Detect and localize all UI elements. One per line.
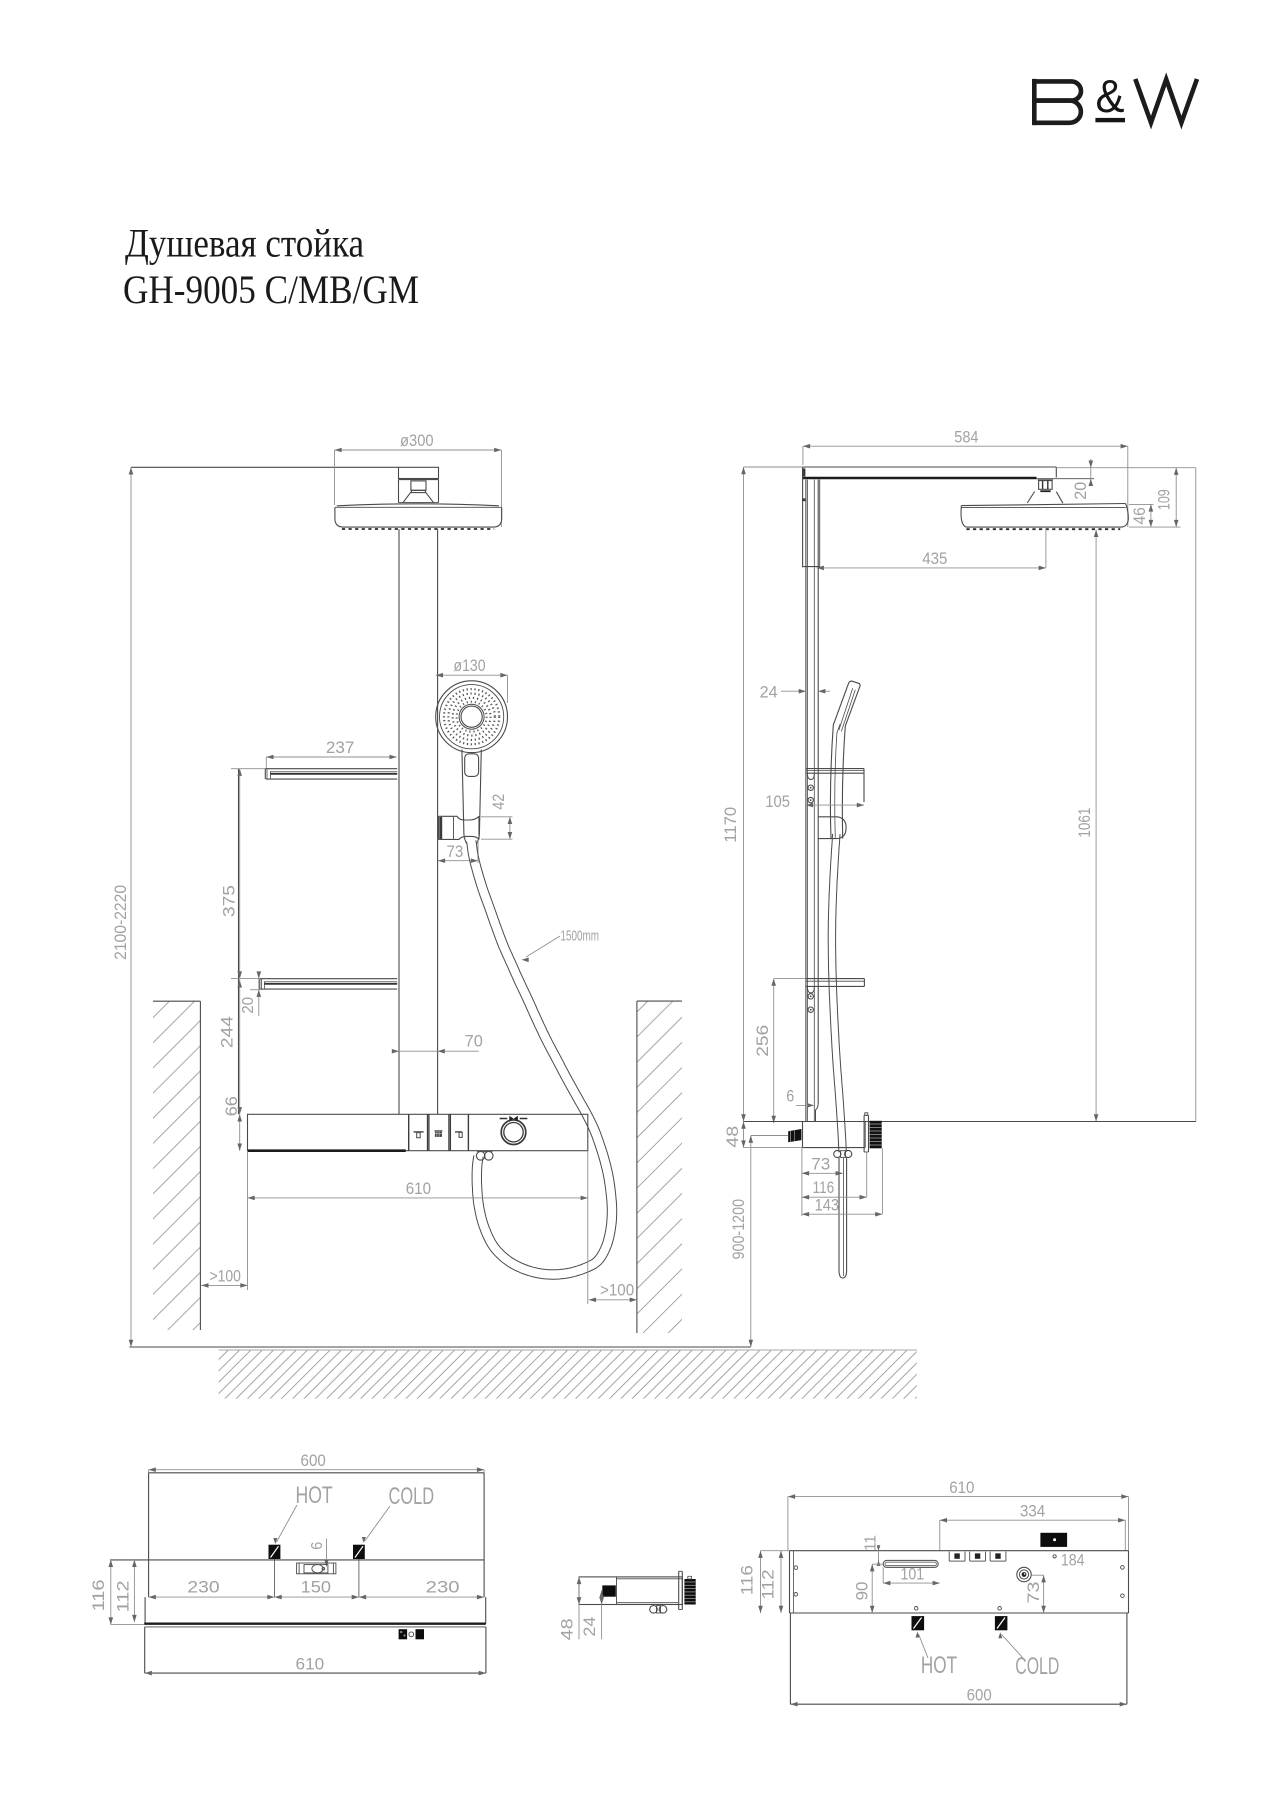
svg-text:435: 435 — [922, 550, 947, 568]
svg-text:&: & — [1096, 70, 1125, 122]
svg-text:143: 143 — [815, 1196, 839, 1214]
svg-text:46: 46 — [1131, 507, 1149, 524]
svg-text:112: 112 — [114, 1580, 132, 1612]
svg-text:73: 73 — [1025, 1582, 1043, 1604]
svg-text:610: 610 — [406, 1180, 431, 1198]
svg-text:HOT: HOT — [296, 1482, 333, 1509]
svg-text:600: 600 — [301, 1452, 326, 1470]
svg-text:101: 101 — [901, 1565, 925, 1583]
svg-text:73: 73 — [447, 843, 464, 861]
svg-text:610: 610 — [949, 1479, 974, 1497]
svg-text:ø300: ø300 — [400, 432, 434, 450]
svg-text:112: 112 — [760, 1569, 778, 1599]
svg-text:116: 116 — [90, 1579, 108, 1611]
svg-text:42: 42 — [490, 794, 508, 810]
svg-text:150: 150 — [301, 1579, 331, 1597]
svg-text:HOT: HOT — [921, 1652, 957, 1679]
svg-text:20: 20 — [240, 996, 257, 1013]
svg-text:66: 66 — [223, 1096, 241, 1116]
svg-text:>100: >100 — [600, 1282, 634, 1300]
svg-text:COLD: COLD — [389, 1483, 435, 1510]
svg-text:GH-9005 C/MB/GM: GH-9005 C/MB/GM — [123, 267, 419, 312]
svg-text:1500mm: 1500mm — [561, 928, 600, 945]
svg-text:116: 116 — [813, 1179, 835, 1197]
svg-text:Душевая стойка: Душевая стойка — [125, 221, 364, 266]
svg-text:48: 48 — [559, 1618, 577, 1640]
svg-text:20: 20 — [1072, 482, 1090, 500]
svg-text:24: 24 — [760, 684, 778, 702]
svg-text:1061: 1061 — [1076, 808, 1094, 838]
svg-text:334: 334 — [1020, 1503, 1045, 1521]
svg-text:256: 256 — [754, 1025, 772, 1057]
svg-text:105: 105 — [765, 793, 790, 811]
svg-text:230: 230 — [187, 1579, 219, 1597]
svg-text:11: 11 — [862, 1535, 879, 1551]
svg-text:ø130: ø130 — [454, 657, 486, 675]
svg-text:6: 6 — [786, 1088, 794, 1106]
svg-text:244: 244 — [219, 1016, 237, 1048]
svg-text:24: 24 — [581, 1617, 599, 1637]
svg-text:584: 584 — [954, 429, 978, 447]
svg-text:109: 109 — [1156, 489, 1174, 510]
svg-text:116: 116 — [739, 1565, 757, 1595]
svg-text:1170: 1170 — [722, 807, 740, 843]
svg-text:230: 230 — [426, 1579, 460, 1597]
svg-text:610: 610 — [296, 1656, 325, 1674]
svg-text:237: 237 — [326, 739, 355, 757]
svg-text:73: 73 — [811, 1155, 830, 1173]
svg-text:>100: >100 — [210, 1268, 241, 1286]
svg-text:600: 600 — [967, 1687, 992, 1705]
svg-text:48: 48 — [724, 1126, 742, 1148]
svg-text:70: 70 — [465, 1033, 483, 1051]
svg-text:375: 375 — [221, 885, 239, 917]
svg-text:900-1200: 900-1200 — [730, 1199, 748, 1260]
svg-text:6: 6 — [309, 1542, 326, 1550]
svg-text:2100-2220: 2100-2220 — [112, 885, 130, 960]
svg-text:90: 90 — [854, 1582, 872, 1601]
svg-text:184: 184 — [1061, 1552, 1085, 1570]
